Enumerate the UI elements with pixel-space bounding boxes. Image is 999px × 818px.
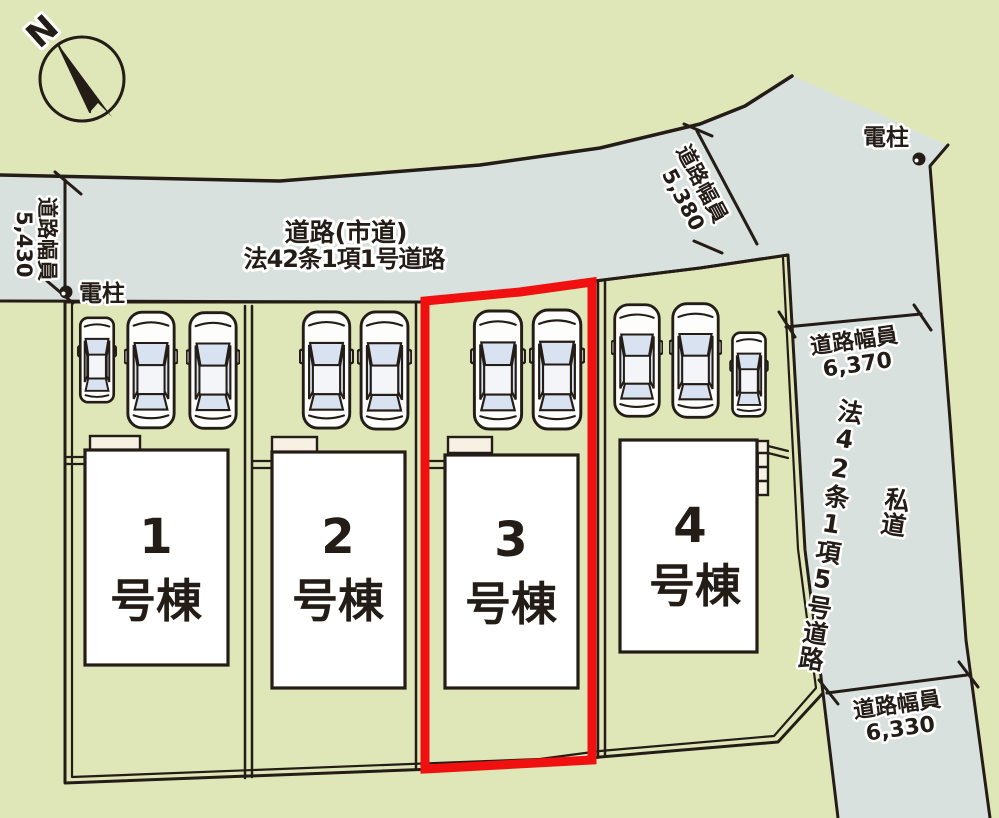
car-icon (669, 304, 721, 418)
site-plan-image: 1 号棟 2 号棟 3 号棟 4 号棟 道路幅員 5,430 道路幅員 5,38… (0, 0, 999, 818)
car-icon (471, 311, 525, 429)
house-2: 2 号棟 (272, 452, 405, 688)
lot-4-suffix: 号棟 (649, 559, 742, 613)
car-icon (300, 312, 353, 428)
house-4: 4 号棟 (620, 440, 757, 652)
dimension-west-label: 道路幅員 (35, 197, 59, 281)
utility-pole-west-label: 電柱 (79, 281, 125, 307)
car-icon (730, 333, 767, 417)
lot-3-suffix: 号棟 (465, 577, 558, 631)
car-icon (358, 312, 412, 429)
lot-1-suffix: 号棟 (110, 574, 203, 628)
utility-pole-east-label: 電柱 (863, 125, 909, 151)
lot-2-number: 2 (321, 509, 354, 565)
car-icon (124, 312, 177, 428)
car-icon (530, 310, 585, 429)
house-3: 3 号棟 (445, 455, 578, 688)
lot-1-number: 1 (139, 509, 172, 565)
car-icon (186, 313, 239, 429)
dimension-west-value: 5,430 (12, 211, 36, 277)
main-road-name-line1: 道路(市道) (285, 218, 408, 247)
site-plan-svg: 1 号棟 2 号棟 3 号棟 4 号棟 道路幅員 5,430 道路幅員 5,38… (0, 0, 999, 818)
lot-4-number: 4 (673, 498, 706, 554)
main-road-name-line2: 法42条1項1号道路 (244, 245, 447, 273)
car-icon (78, 318, 116, 402)
house-1: 1 号棟 (85, 450, 228, 665)
lot-3-number: 3 (494, 512, 527, 568)
car-icon (611, 305, 662, 416)
lot-2-suffix: 号棟 (292, 574, 385, 628)
